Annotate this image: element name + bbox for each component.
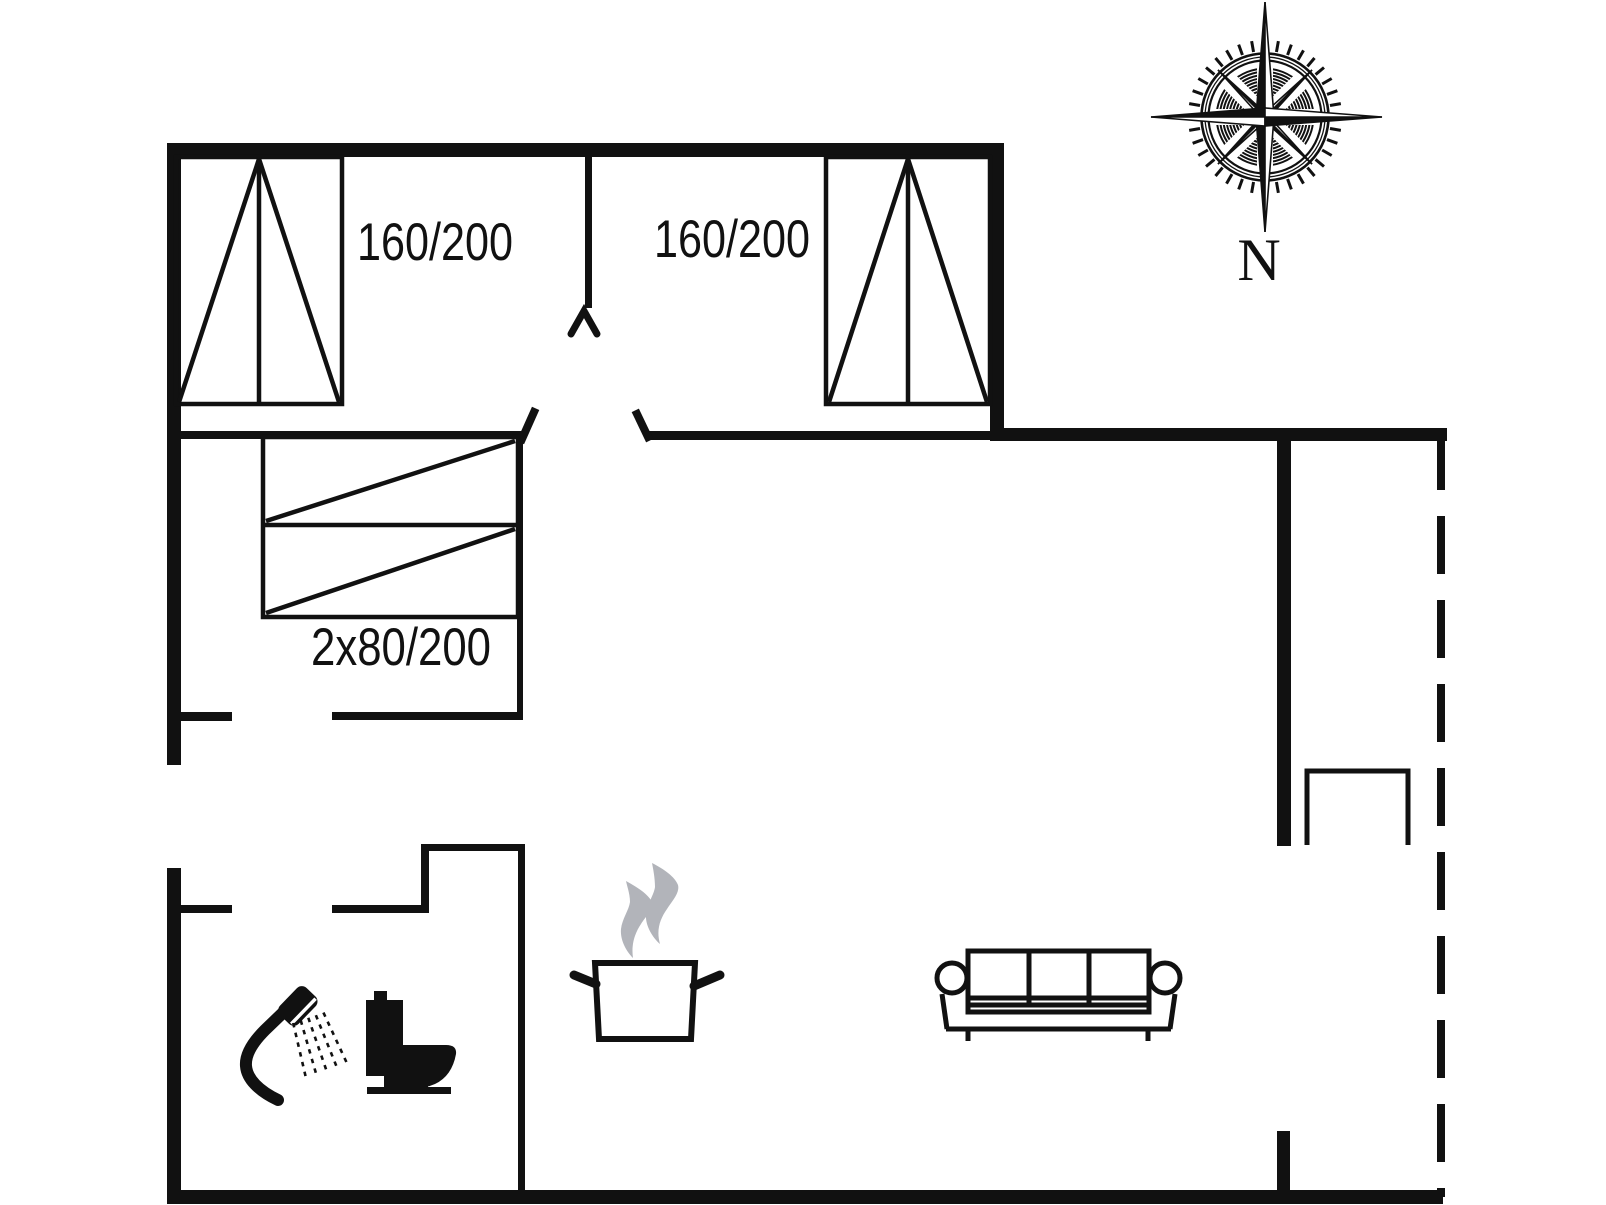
svg-text:160/200: 160/200 [357, 213, 513, 272]
svg-text:N: N [1237, 227, 1280, 293]
svg-text:2x80/200: 2x80/200 [311, 618, 491, 677]
svg-text:160/200: 160/200 [654, 210, 810, 269]
